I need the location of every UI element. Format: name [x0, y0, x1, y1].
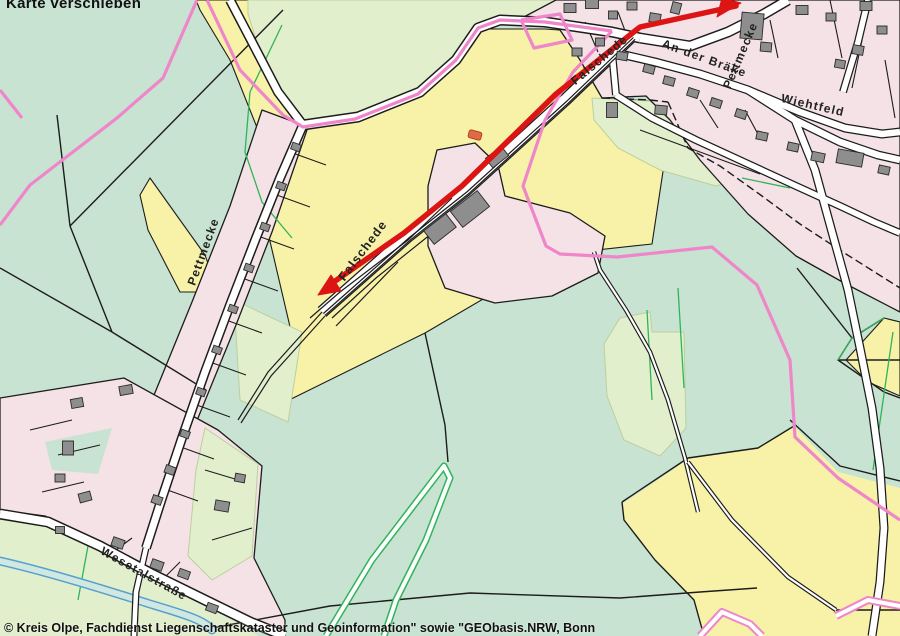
map-viewport[interactable]: Pettmecke Falschede Falschede An der Brä… [0, 0, 900, 636]
map-canvas[interactable]: Pettmecke Falschede Falschede An der Brä… [0, 0, 900, 636]
copyright-notice: © Kreis Olpe, Fachdienst Liegenschaftska… [4, 621, 595, 635]
